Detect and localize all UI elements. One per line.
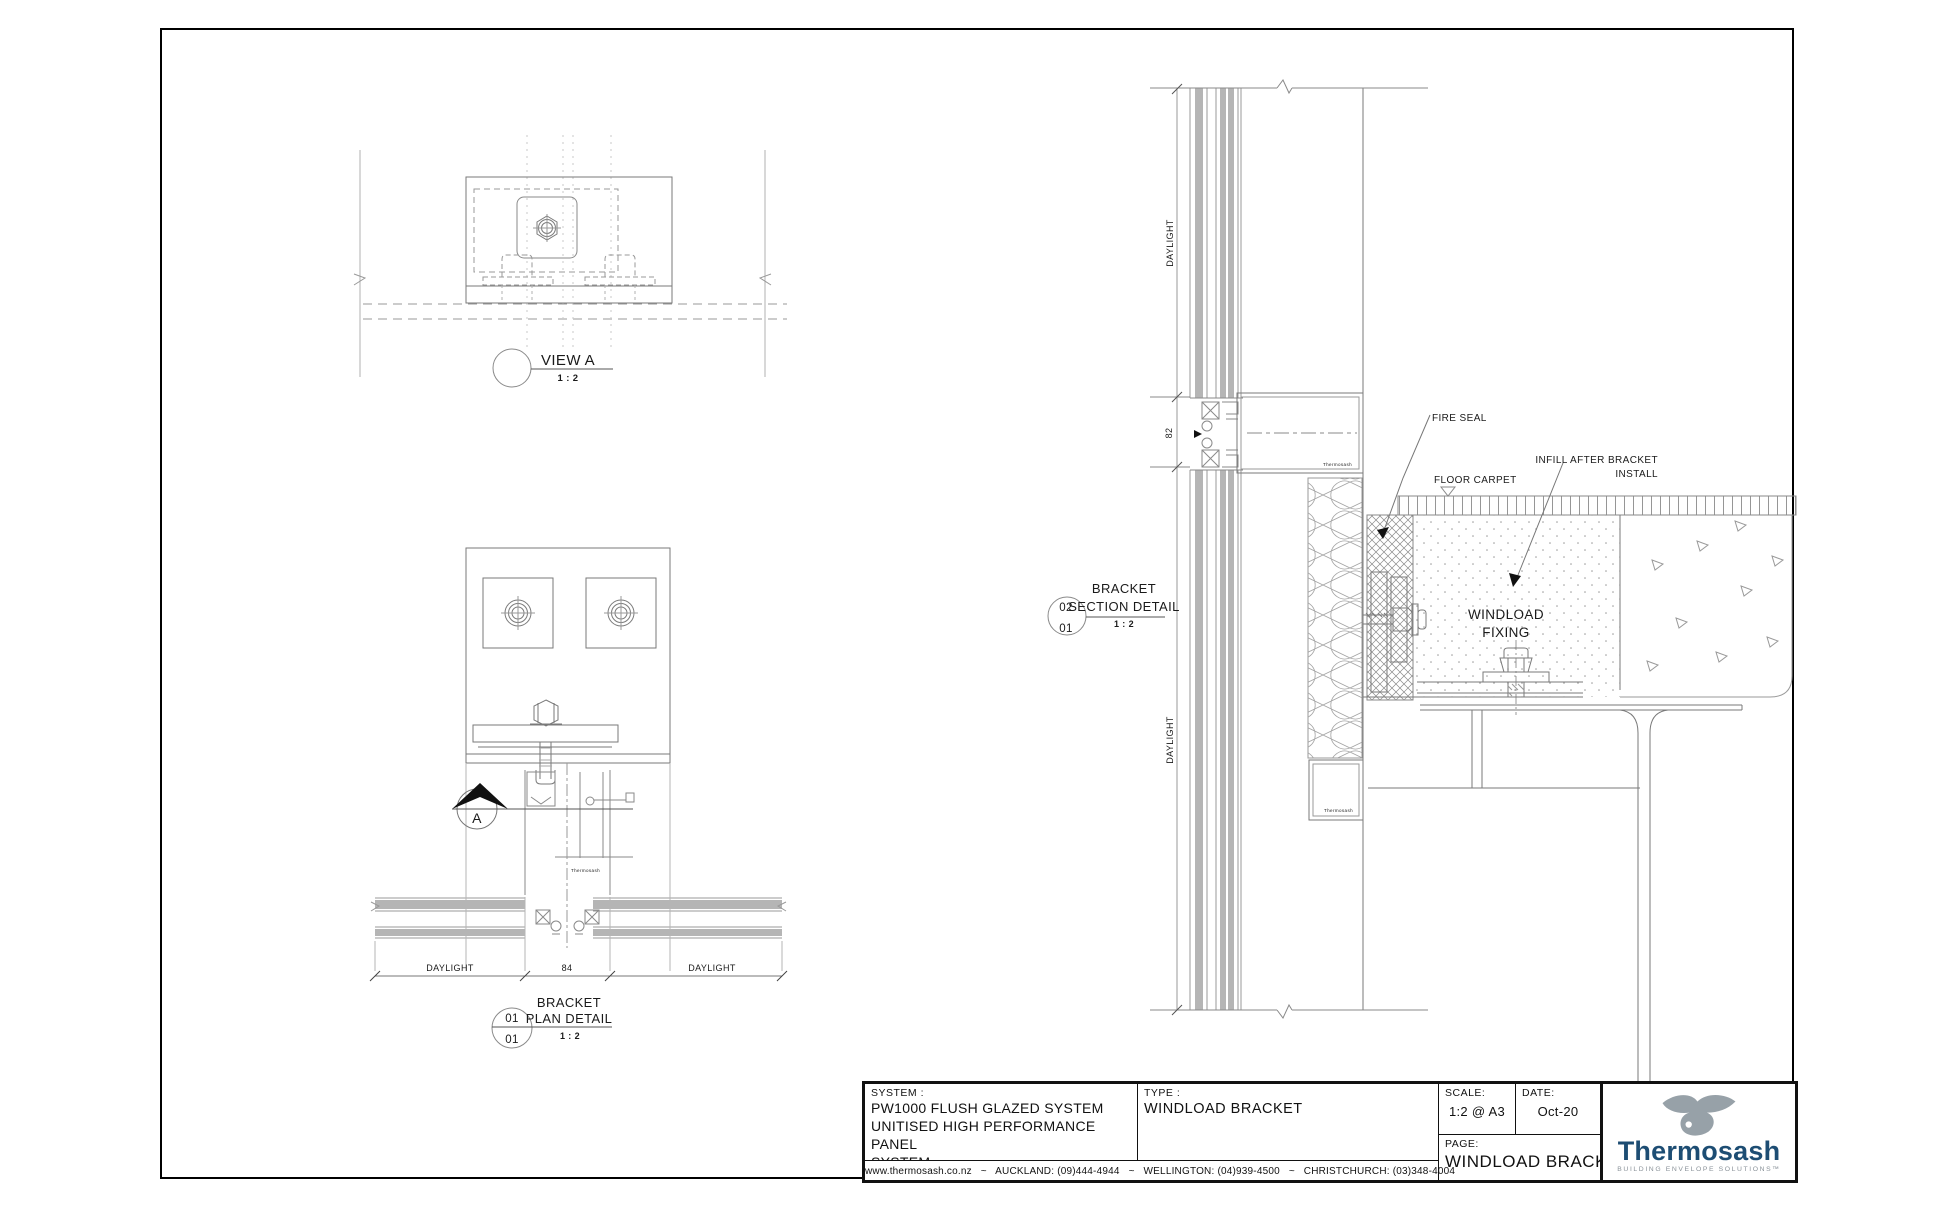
date-label: DATE: <box>1516 1084 1600 1099</box>
type-cell: TYPE : WINDLOAD BRACKET <box>1137 1084 1438 1160</box>
cad-drawing-canvas: VIEW A 1 : 2 <box>0 0 1959 1210</box>
plan-section-marker-letter: A <box>472 810 482 826</box>
thermosash-tagline: BUILDING ENVELOPE SOLUTIONS™ <box>1617 1166 1780 1173</box>
system-line-2: UNITISED HIGH PERFORMANCE PANEL <box>865 1117 1137 1153</box>
drawing-sheet: VIEW A 1 : 2 <box>0 0 1959 1210</box>
plan-title-line2: PLAN DETAIL <box>526 1011 613 1026</box>
infill-label-line1: INFILL AFTER BRACKET <box>1535 455 1658 466</box>
view-marker-circle <box>493 349 531 387</box>
section-title-scale: 1 : 2 <box>1114 619 1134 629</box>
plan-brand-mark: Thermosash <box>571 868 600 873</box>
section-dim-bottom: DAYLIGHT <box>1165 716 1175 764</box>
section-ref-bottom: 01 <box>1059 623 1073 635</box>
infill-zone <box>1413 515 1620 697</box>
view-a-scale: 1 : 2 <box>557 373 578 384</box>
bracket-plan-body <box>466 548 670 763</box>
title-block: SYSTEM : PW1000 FLUSH GLAZED SYSTEM UNIT… <box>862 1081 1798 1183</box>
date-value: Oct-20 <box>1516 1099 1600 1119</box>
windload-label-line1: WINDLOAD <box>1468 607 1544 622</box>
system-line-1: PW1000 FLUSH GLAZED SYSTEM <box>865 1099 1137 1117</box>
steel-beam <box>1363 682 1742 1081</box>
bolt-head <box>533 214 561 242</box>
system-label: SYSTEM : <box>865 1084 1137 1099</box>
bracket-base <box>466 286 672 303</box>
system-cell: SYSTEM : PW1000 FLUSH GLAZED SYSTEM UNIT… <box>865 1084 1137 1160</box>
plan-bolt-left <box>501 596 535 630</box>
concrete-slab <box>1620 515 1792 697</box>
section-dim-top: DAYLIGHT <box>1165 219 1175 267</box>
plan-dim-right: DAYLIGHT <box>688 963 736 973</box>
contact-line: www.thermosash.co.nz ~ AUCKLAND: (09)444… <box>865 1160 1438 1182</box>
thermosash-bird-icon <box>1651 1092 1747 1138</box>
plan-mullion <box>525 763 634 948</box>
plan-bolt-right <box>604 596 638 630</box>
type-label: TYPE : <box>1138 1084 1438 1099</box>
section-detail-drawing <box>1048 80 1796 1081</box>
spandrel-brand-mark: Thermosash <box>1324 808 1353 813</box>
floor-carpet-label: FLOOR CARPET <box>1434 475 1517 486</box>
system-line-3: SYSTEM <box>865 1153 1137 1160</box>
transom-brand-mark: Thermosash <box>1323 462 1352 467</box>
thermosash-wordmark: Thermosash <box>1618 1138 1781 1164</box>
view-a-labels: VIEW A 1 : 2 <box>541 352 595 384</box>
page-label: PAGE: <box>1439 1135 1600 1150</box>
glass-unit <box>1190 88 1241 1010</box>
fire-seal-label: FIRE SEAL <box>1432 413 1487 424</box>
view-a-drawing <box>354 135 787 387</box>
scale-value: 1:2 @ A3 <box>1439 1099 1515 1119</box>
scale-cell: SCALE: 1:2 @ A3 <box>1438 1084 1515 1134</box>
plan-title-scale: 1 : 2 <box>560 1031 580 1041</box>
windload-label-line2: FIXING <box>1482 625 1529 640</box>
section-title-line1: BRACKET <box>1092 581 1156 596</box>
plan-dim-left: DAYLIGHT <box>426 963 474 973</box>
section-dim-joint: 82 <box>1164 428 1174 439</box>
transom-box <box>1237 393 1363 473</box>
plan-dim-center: 84 <box>562 963 573 973</box>
plan-ref-top: 01 <box>505 1013 519 1025</box>
view-a-title: VIEW A <box>541 352 595 369</box>
page-value: WINDLOAD BRACKET <box>1439 1150 1600 1172</box>
scale-label: SCALE: <box>1439 1084 1515 1099</box>
bracket-body <box>466 177 672 286</box>
insulation-batt <box>1308 478 1362 758</box>
plan-title-line1: BRACKET <box>537 995 601 1010</box>
plan-detail-drawing <box>370 548 787 1048</box>
plan-detail-labels: A DAYLIGHT 84 DAYLIGHT Thermosash 01 01 … <box>426 810 736 1046</box>
section-title-line2: SECTION DETAIL <box>1068 599 1180 614</box>
date-cell: DATE: Oct-20 <box>1515 1084 1600 1134</box>
floor-carpet <box>1398 496 1796 515</box>
logo-cell: Thermosash BUILDING ENVELOPE SOLUTIONS™ <box>1600 1084 1795 1180</box>
plan-ref-bottom: 01 <box>505 1034 519 1046</box>
infill-label-line2: INSTALL <box>1615 469 1658 480</box>
type-value: WINDLOAD BRACKET <box>1138 1099 1438 1117</box>
page-cell: PAGE: WINDLOAD BRACKET <box>1438 1134 1600 1182</box>
